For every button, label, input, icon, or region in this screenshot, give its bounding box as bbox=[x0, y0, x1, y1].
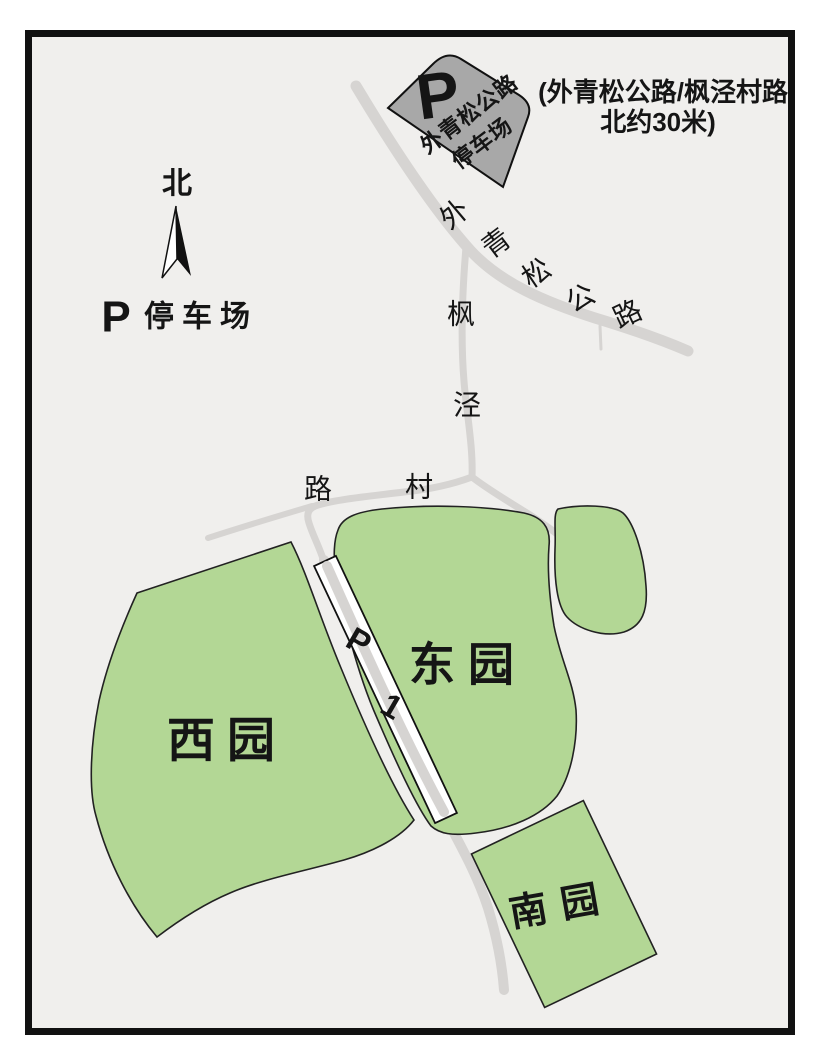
map-page: P 外青松公路 停车场 (外青松公路/枫泾村路 北约30米) 北 P 停车场 外… bbox=[0, 0, 823, 1064]
note-line1: (外青松公路/枫泾村路 bbox=[538, 77, 789, 107]
legend-p-label: P bbox=[101, 293, 130, 342]
road-label-fengjing-2: 村 bbox=[405, 472, 433, 504]
garden-east-label: 东园 bbox=[409, 640, 527, 691]
road-label-fengjing-0: 枫 bbox=[447, 299, 475, 331]
road-label-fengjing-1: 泾 bbox=[453, 390, 481, 422]
north-label: 北 bbox=[162, 168, 192, 201]
garden-west-label: 西园 bbox=[167, 715, 287, 768]
road-label-fengjing-3: 路 bbox=[304, 474, 332, 506]
note-line2: 北约30米) bbox=[600, 107, 716, 137]
legend-parking-label: 停车场 bbox=[144, 300, 258, 334]
park-map: P 外青松公路 停车场 (外青松公路/枫泾村路 北约30米) 北 P 停车场 外… bbox=[0, 0, 823, 1064]
road-minor-stub bbox=[600, 326, 601, 349]
